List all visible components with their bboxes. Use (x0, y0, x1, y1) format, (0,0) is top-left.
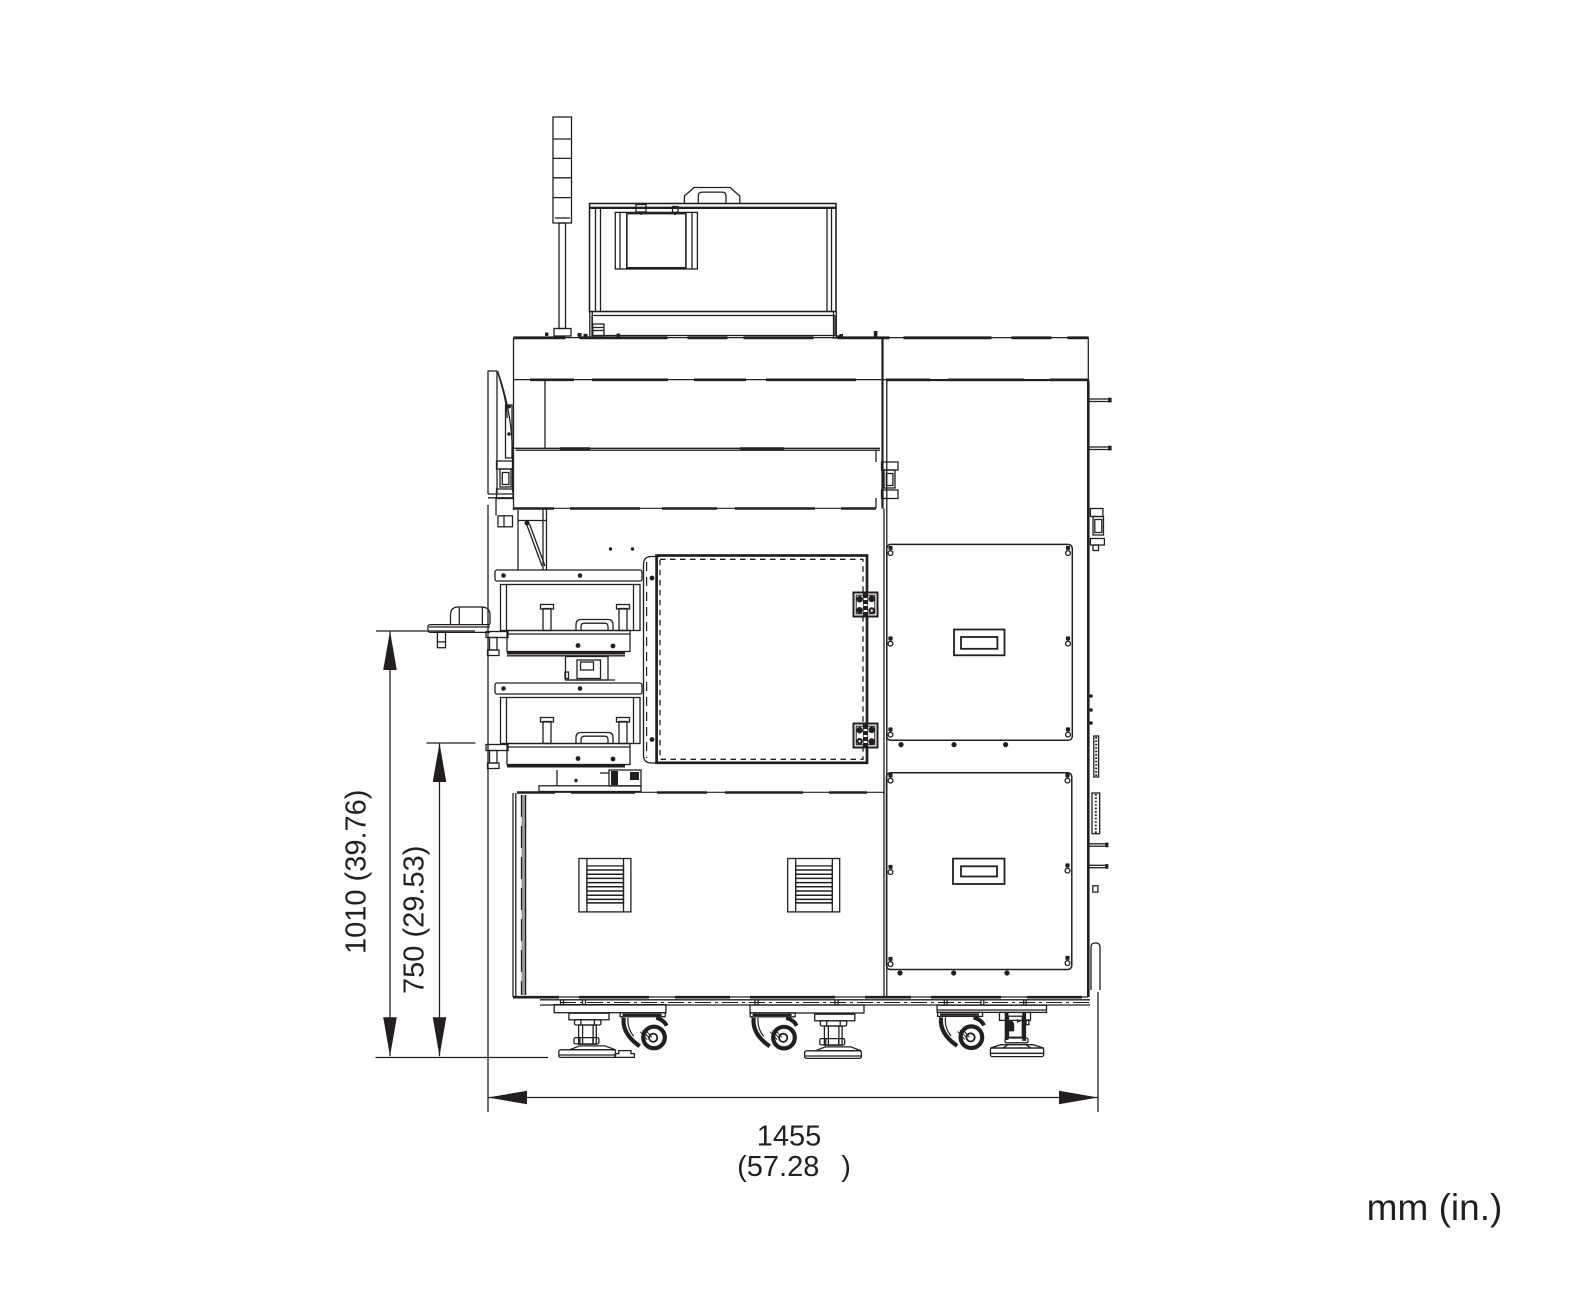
svg-text:(57.28 ): (57.28 ) (737, 1151, 851, 1183)
svg-text:mm (in.): mm (in.) (1367, 1187, 1503, 1228)
svg-text:750 (29.53): 750 (29.53) (399, 846, 431, 994)
svg-text:1010 (39.76): 1010 (39.76) (341, 790, 373, 954)
svg-text:1455: 1455 (757, 1121, 822, 1153)
